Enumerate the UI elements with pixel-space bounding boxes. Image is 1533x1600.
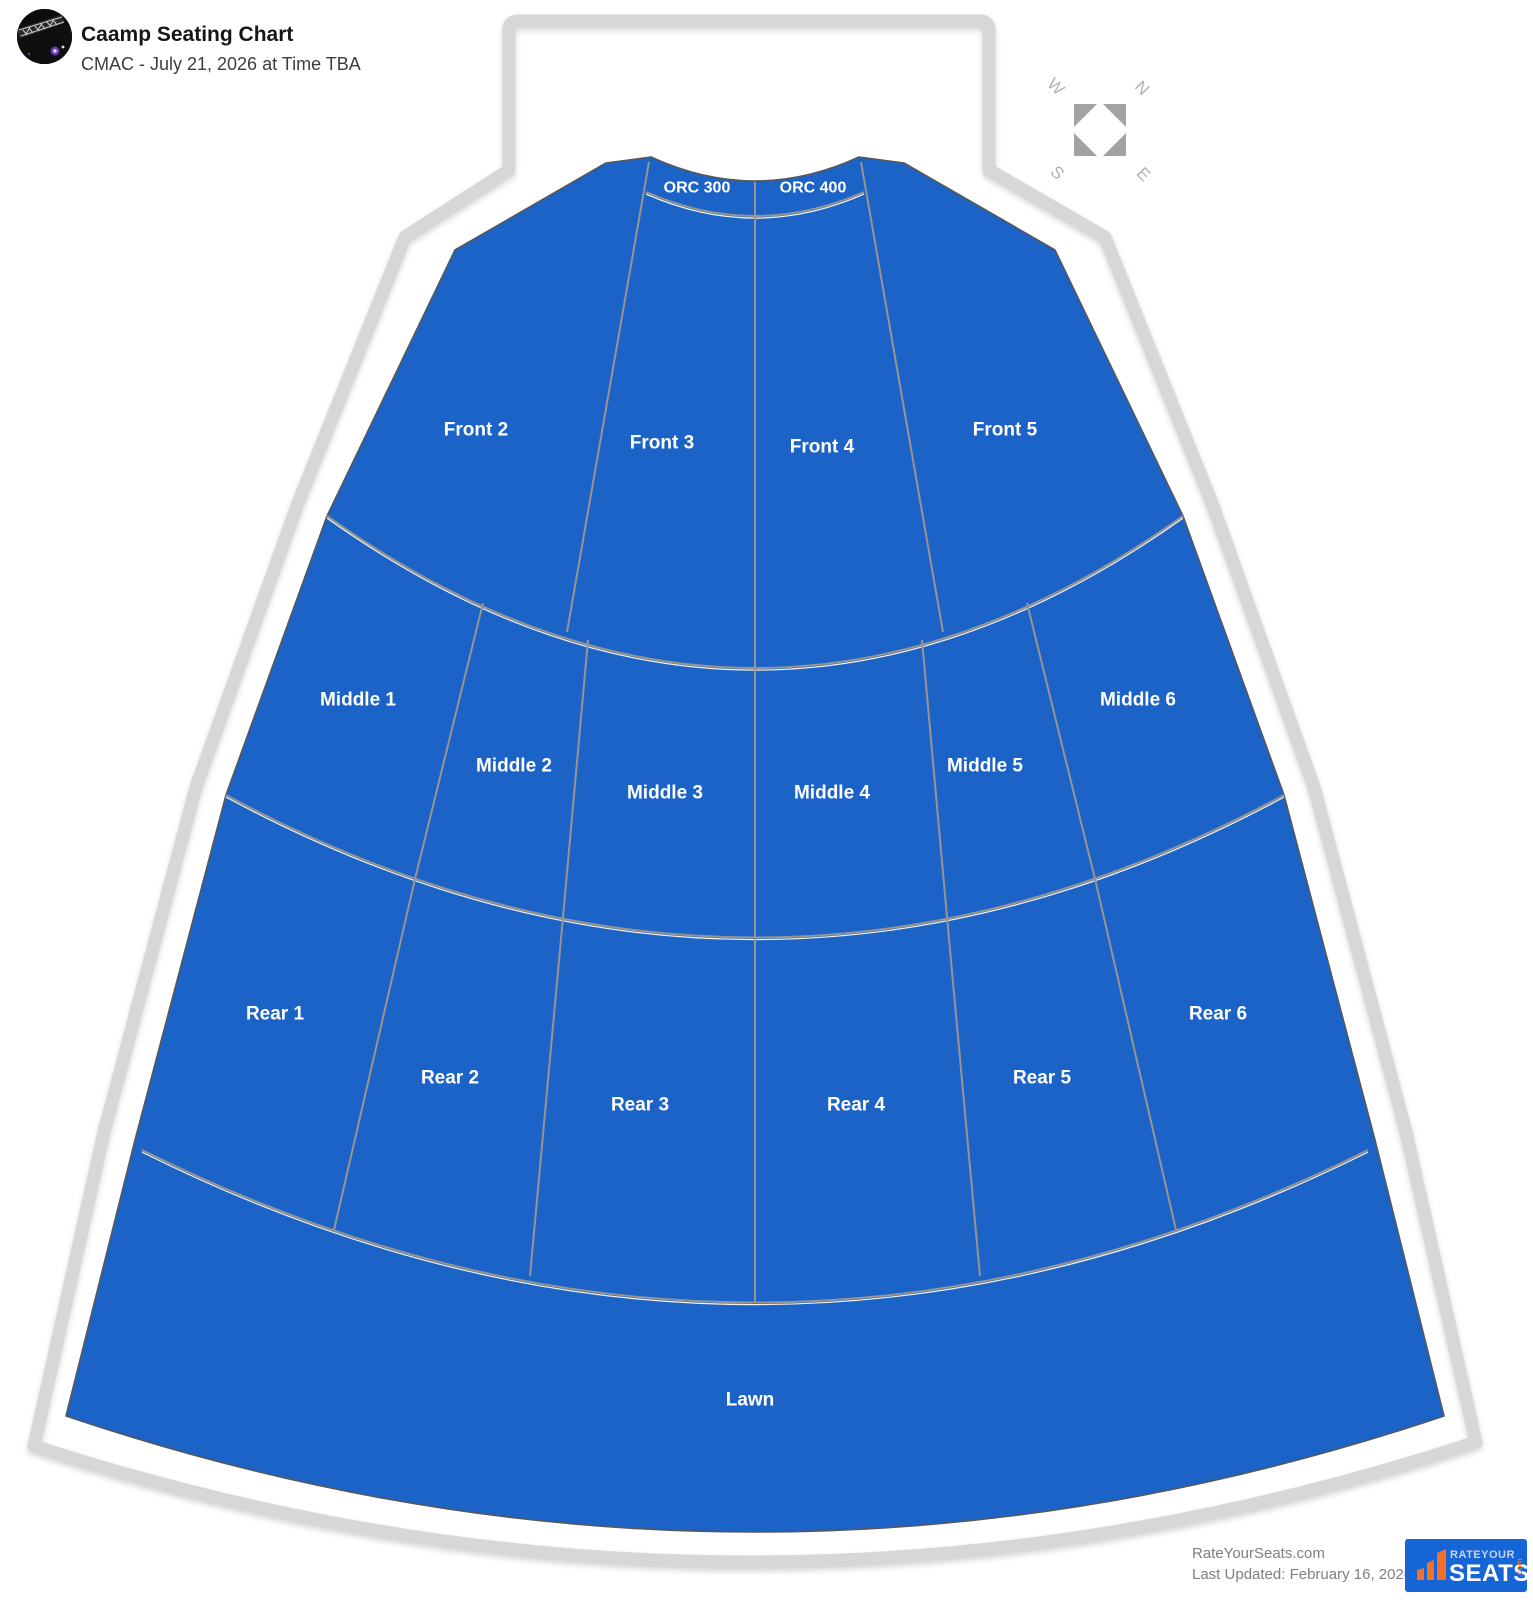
section-label-middle-3[interactable]: Middle 3 bbox=[627, 783, 703, 804]
rateyourseats-logo[interactable]: RATEYOUR SEATS .com bbox=[1405, 1539, 1527, 1592]
footer-last-updated: Last Updated: February 16, 2026 bbox=[1192, 1564, 1412, 1585]
section-label-lawn[interactable]: Lawn bbox=[726, 1390, 775, 1411]
seating-map: ORC 300ORC 400Front 2Front 3Front 4Front… bbox=[0, 0, 1533, 1600]
seating-chart-page: Caamp Seating Chart CMAC - July 21, 2026… bbox=[0, 0, 1533, 1600]
section-label-rear-4[interactable]: Rear 4 bbox=[827, 1095, 886, 1116]
logo-bars-icon bbox=[1417, 1549, 1446, 1580]
section-label-middle-6[interactable]: Middle 6 bbox=[1100, 690, 1176, 711]
compass-west: W bbox=[1043, 74, 1068, 99]
section-label-middle-4[interactable]: Middle 4 bbox=[794, 783, 870, 804]
footer-site-name: RateYourSeats.com bbox=[1192, 1543, 1412, 1564]
rateyourseats-logo-image: RATEYOUR SEATS .com bbox=[1405, 1539, 1527, 1592]
compass-icon bbox=[1074, 104, 1126, 156]
section-label-rear-1[interactable]: Rear 1 bbox=[246, 1004, 305, 1025]
section-label-rear-2[interactable]: Rear 2 bbox=[421, 1068, 479, 1089]
section-label-middle-5[interactable]: Middle 5 bbox=[947, 756, 1023, 777]
section-label-middle-1[interactable]: Middle 1 bbox=[320, 690, 396, 711]
section-label-front-4[interactable]: Front 4 bbox=[790, 437, 855, 458]
logo-text-com: .com bbox=[1515, 1558, 1524, 1577]
compass-south: S bbox=[1046, 162, 1067, 183]
section-label-middle-2[interactable]: Middle 2 bbox=[476, 756, 552, 777]
section-label-front-2[interactable]: Front 2 bbox=[444, 420, 508, 441]
section-label-orc-300[interactable]: ORC 300 bbox=[664, 180, 731, 197]
footer-credits: RateYourSeats.com Last Updated: February… bbox=[1192, 1543, 1412, 1585]
section-label-orc-400[interactable]: ORC 400 bbox=[780, 180, 847, 197]
section-label-front-3[interactable]: Front 3 bbox=[630, 433, 694, 454]
compass-east: E bbox=[1133, 163, 1154, 184]
section-label-rear-6[interactable]: Rear 6 bbox=[1189, 1004, 1247, 1025]
compass-north: N bbox=[1131, 77, 1153, 99]
section-label-rear-5[interactable]: Rear 5 bbox=[1013, 1068, 1072, 1089]
section-label-front-5[interactable]: Front 5 bbox=[973, 420, 1038, 441]
section-label-rear-3[interactable]: Rear 3 bbox=[611, 1095, 669, 1116]
